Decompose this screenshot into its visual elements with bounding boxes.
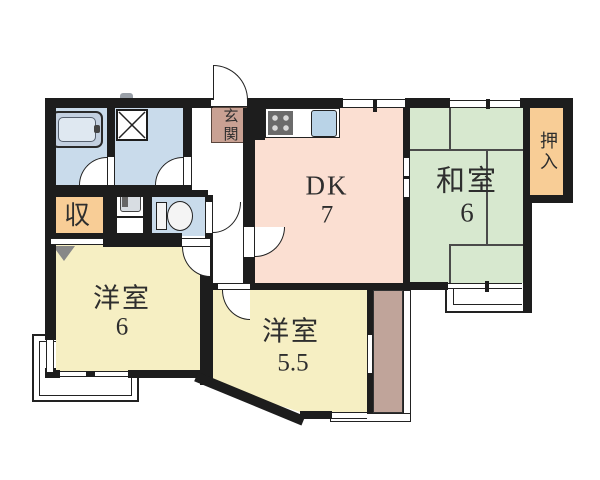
room-size-dk: 7 (321, 203, 334, 228)
wall (103, 192, 117, 236)
balcony-south-rail-side (403, 290, 411, 422)
wall (410, 282, 448, 290)
window-tick (486, 99, 490, 109)
wall (367, 290, 373, 335)
wall (103, 233, 182, 247)
balcony-south-floor (373, 290, 403, 413)
wall (300, 411, 332, 419)
room-label-western-6: 洋室 (93, 286, 151, 313)
room-size-washitsu: 6 (460, 200, 474, 227)
door-opening (218, 283, 250, 290)
wall (45, 240, 56, 340)
bathtub-faucet (94, 125, 100, 133)
room-label-western-55: 洋室 (262, 319, 320, 346)
room-label-washitsu: 和室 (436, 168, 498, 197)
wall (107, 108, 115, 157)
room-size-western-6: 6 (116, 315, 129, 340)
wall (143, 190, 208, 197)
wall (523, 195, 532, 313)
room-size-western-55: 5.5 (277, 351, 308, 376)
window (332, 412, 367, 419)
tatami-line (449, 245, 451, 283)
wall (405, 98, 450, 108)
wall (403, 105, 410, 158)
kitchen-sink-icon (311, 110, 337, 137)
window-tick (373, 100, 377, 112)
wall (403, 283, 410, 290)
wall (143, 195, 152, 238)
window (450, 100, 520, 108)
wall (255, 108, 265, 140)
tatami-line (410, 149, 523, 151)
toilet-tank (156, 202, 167, 230)
door-opening (243, 227, 255, 257)
bathtub-inner (58, 117, 96, 142)
wall (247, 98, 343, 108)
washing-machine-icon (116, 109, 148, 141)
entrance-threshold (211, 99, 247, 107)
wall (403, 197, 410, 285)
wall (563, 98, 573, 203)
washing-machine-cross (118, 111, 146, 139)
closet-opening (51, 238, 103, 245)
window-tick (86, 371, 95, 377)
tatami-line (449, 244, 523, 246)
tatami-line (486, 150, 488, 246)
door-opening (182, 238, 210, 247)
door-opening (183, 157, 192, 185)
room-label-genkan: 玄関 (222, 108, 237, 144)
closet-door-mark (53, 246, 75, 261)
floor-plan: DK 7 和室 6 洋室 6 洋室 5.5 収 玄関 押入 (0, 0, 600, 480)
room-label-oshiire: 押入 (539, 131, 557, 173)
wash-basin-faucet (122, 197, 128, 207)
window (46, 340, 54, 372)
toilet-bowl-icon (167, 201, 193, 231)
entrance-door-arc (213, 65, 248, 100)
door-opening (205, 202, 213, 233)
room-label-dk: DK (306, 173, 349, 200)
wall (183, 108, 192, 157)
room-label-storage: 収 (64, 203, 90, 229)
wall (367, 373, 373, 413)
kitchen-stove-icon (268, 111, 293, 135)
wall (243, 108, 255, 227)
wall (523, 105, 530, 195)
tatami-line (449, 105, 451, 150)
wall (45, 98, 56, 245)
wall (250, 283, 405, 290)
wall (45, 98, 213, 108)
sliding-door-tick (403, 176, 410, 179)
window-tick (485, 281, 489, 292)
door-opening (107, 157, 115, 185)
toilet-door-arc (213, 202, 241, 233)
window (367, 335, 373, 373)
wall (205, 195, 213, 202)
